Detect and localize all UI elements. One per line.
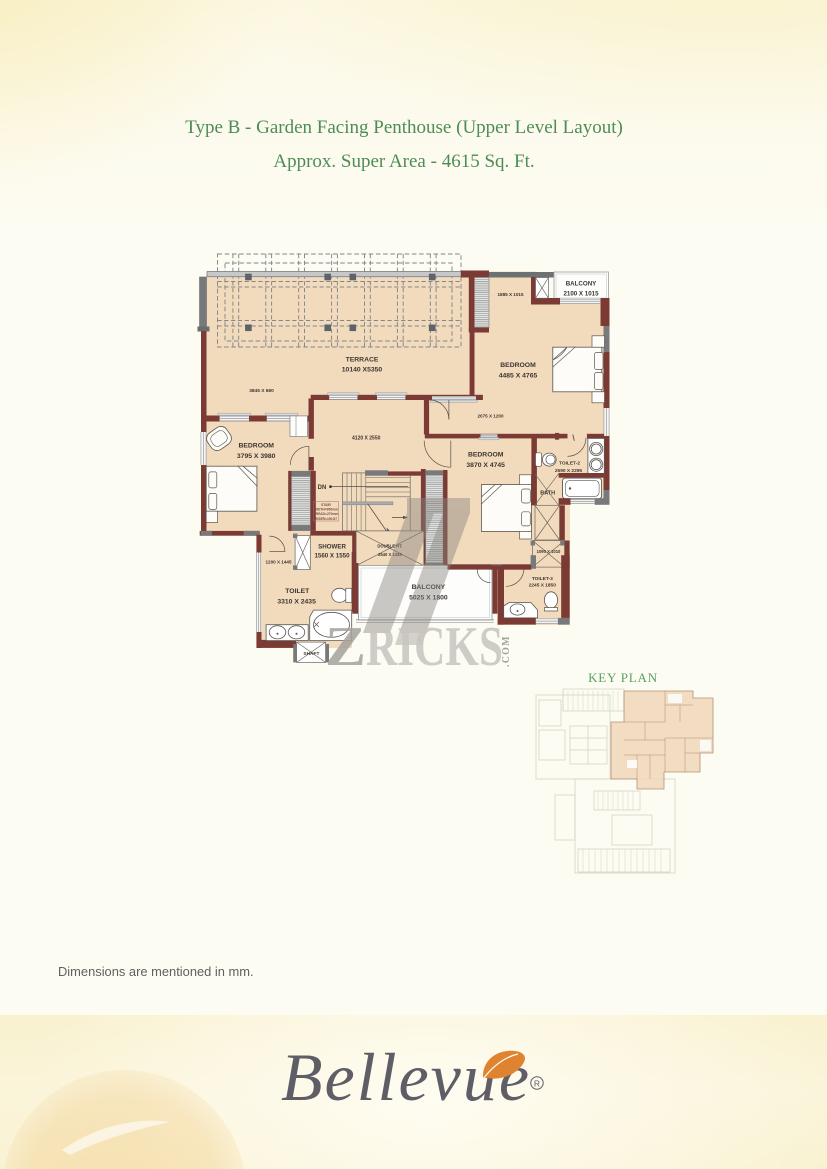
svg-text:R: R [534,1078,540,1088]
